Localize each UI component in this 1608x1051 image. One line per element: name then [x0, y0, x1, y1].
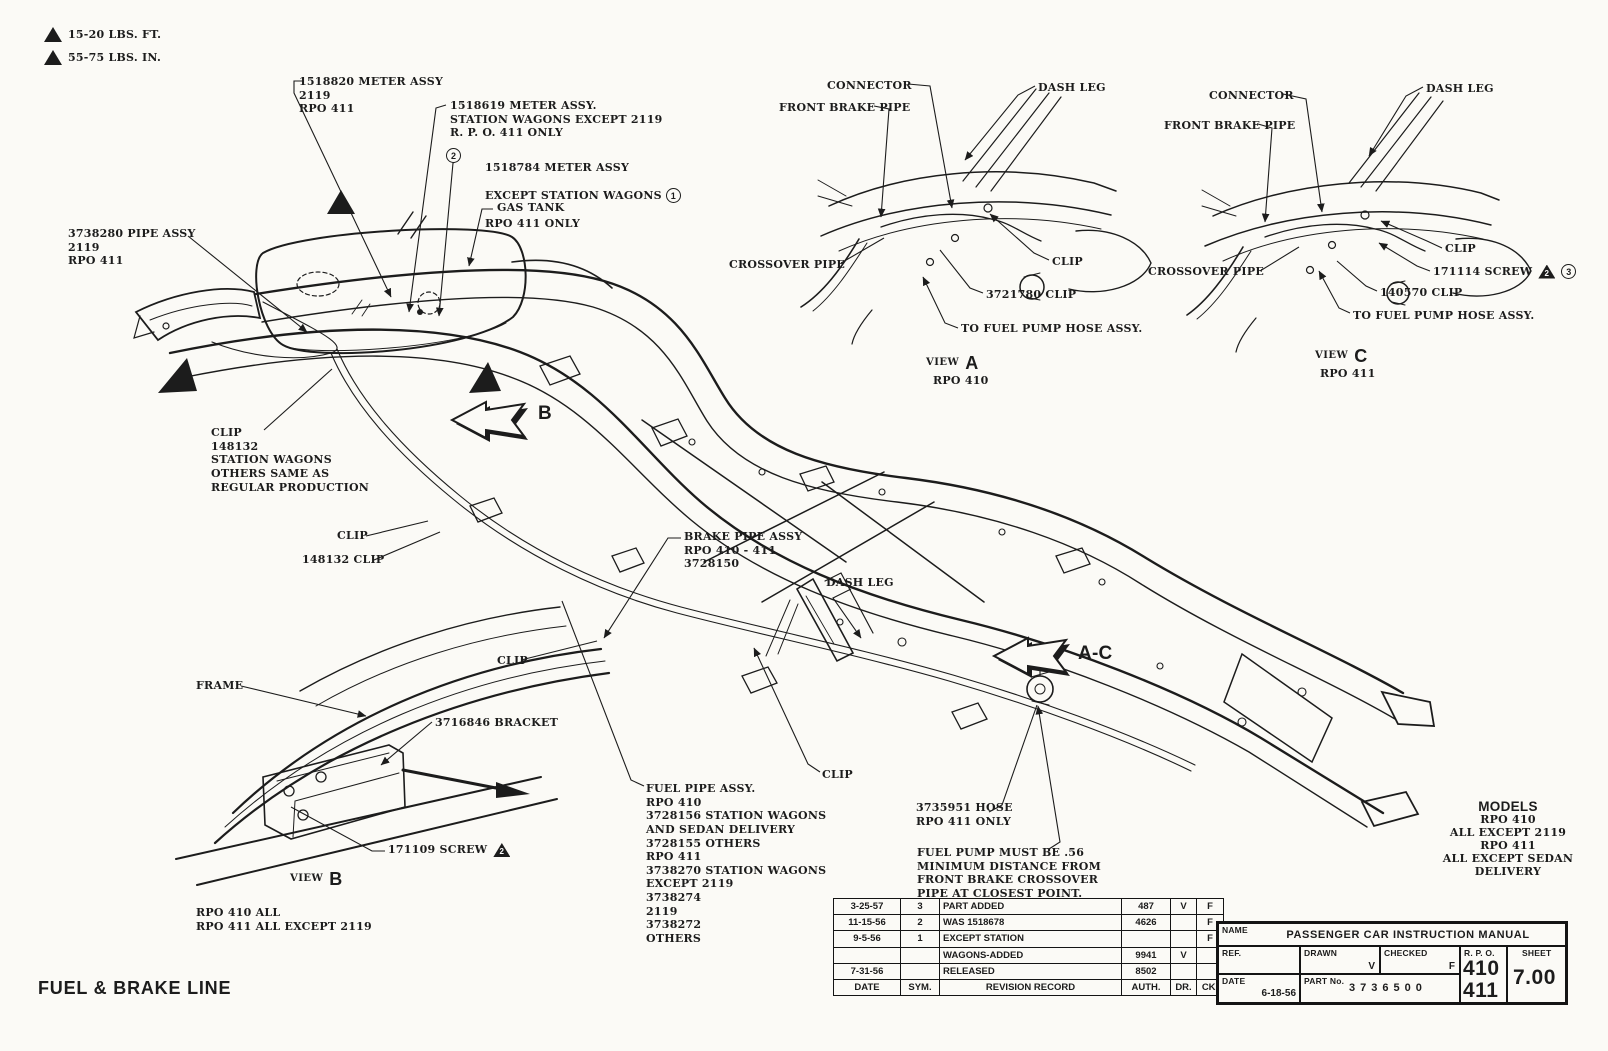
- callout-clip-lower: CLIP: [497, 654, 528, 668]
- legend-torque-in: 55-75 LBS. IN.: [44, 50, 161, 65]
- callout-meter-1518820: 1518820 METER ASSY 2119 RPO 411: [299, 75, 443, 116]
- view-a-clip-3721780: 3721780 CLIP: [986, 288, 1076, 302]
- rev-date: 11-15-56: [834, 915, 901, 931]
- view-a-crossover-pipe: CROSSOVER PIPE: [729, 258, 845, 272]
- view-c-clip: CLIP: [1445, 242, 1476, 256]
- view-a-connector: CONNECTOR: [827, 79, 912, 93]
- table-row: 3-25-57 3 PART ADDED 487 V F: [834, 899, 1224, 915]
- sheet-cell: SHEET 7.00: [1507, 946, 1566, 1003]
- chassis-art: [134, 212, 1434, 827]
- arrow-b-label: B: [538, 402, 552, 426]
- torque-triangle-2-icon: 2: [493, 843, 510, 857]
- rev-record: WAS 1518678: [940, 915, 1122, 931]
- view-b-screw-text: 171109 SCREW: [388, 843, 487, 857]
- rev-auth: 9941: [1122, 947, 1171, 963]
- rpo-value-2: 411: [1463, 980, 1498, 1001]
- drawn-value: V: [1368, 961, 1375, 972]
- legend-torque-ft-text: 15-20 LBS. FT.: [68, 28, 161, 42]
- circled-3-marker: 3: [1561, 264, 1576, 279]
- rpo-value-1: 410: [1463, 958, 1500, 979]
- checked-label: CHECKED: [1384, 948, 1427, 958]
- view-c-word: VIEW: [1315, 350, 1348, 362]
- view-c-to-fuel-pump: TO FUEL PUMP HOSE ASSY.: [1353, 309, 1534, 323]
- view-c-rpo: RPO 411: [1320, 367, 1376, 381]
- view-b-bracket: 3716846 BRACKET: [435, 716, 558, 730]
- callout-pipe-3738280: 3738280 PIPE ASSY 2119 RPO 411: [68, 227, 196, 268]
- sheet-value: 7.00: [1513, 967, 1556, 988]
- torque-triangle-2-icon: 2: [1538, 265, 1555, 279]
- torque-triangle-icon: [44, 27, 62, 42]
- rev-ck: F: [1197, 899, 1224, 915]
- arrow-ac-label: A-C: [1078, 642, 1113, 666]
- callout-meter-1518784: 1518784 METER ASSY EXCEPT STATION WAGONS…: [485, 147, 681, 244]
- drawing-title: FUEL & BRAKE LINE: [38, 978, 231, 999]
- view-b-letter: B: [329, 870, 342, 888]
- circled-2-marker: 2: [446, 148, 461, 163]
- table-header-row: DATE SYM. REVISION RECORD AUTH. DR. CK.: [834, 979, 1224, 995]
- table-row: WAGONS-ADDED 9941 V: [834, 947, 1224, 963]
- name-cell: NAME PASSENGER CAR INSTRUCTION MANUAL: [1218, 923, 1566, 946]
- callout-clip-station-wagons: CLIP 148132 STATION WAGONS OTHERS SAME A…: [211, 426, 369, 494]
- view-a-word: VIEW: [926, 357, 959, 369]
- rev-dr: [1171, 931, 1197, 947]
- rev-record: PART ADDED: [940, 899, 1122, 915]
- callout-gas-tank: GAS TANK: [497, 201, 564, 215]
- view-a-front-brake-pipe: FRONT BRAKE PIPE: [779, 101, 910, 115]
- view-c-clip-140570: 140570 CLIP: [1380, 286, 1462, 300]
- header-sym: SYM.: [901, 979, 940, 995]
- header-date: DATE: [834, 979, 901, 995]
- date-cell: DATE 6-18-56: [1218, 974, 1300, 1003]
- header-auth: AUTH.: [1122, 979, 1171, 995]
- rev-date: 7-31-56: [834, 963, 901, 979]
- part-value: 3736500: [1349, 982, 1427, 994]
- rev-sym: [901, 963, 940, 979]
- view-a-dash-leg: DASH LEG: [1038, 81, 1106, 95]
- view-c-title: VIEW C: [1315, 347, 1368, 365]
- circled-1-marker: 1: [666, 188, 681, 203]
- rev-dr: [1171, 915, 1197, 931]
- callout-clip-mid: CLIP: [337, 529, 368, 543]
- drawn-label: DRAWN: [1304, 948, 1337, 958]
- part-cell: PART No. 3736500: [1300, 974, 1460, 1003]
- table-row: 7-31-56 RELEASED 8502: [834, 963, 1224, 979]
- view-a-rpo: RPO 410: [933, 374, 989, 388]
- rev-dr: [1171, 963, 1197, 979]
- leader-lines: [188, 81, 1442, 851]
- view-c-connector: CONNECTOR: [1209, 89, 1294, 103]
- callout-dash-leg: DASH LEG: [826, 576, 894, 590]
- view-b-screw: 171109 SCREW 2: [388, 843, 510, 857]
- sheet-label: SHEET: [1522, 948, 1551, 958]
- view-b-applicability: RPO 410 ALL RPO 411 ALL EXCEPT 2119: [196, 906, 372, 933]
- callout-clip-148132: 148132 CLIP: [302, 553, 384, 567]
- callout-fuel-pump-note: FUEL PUMP MUST BE .56 MINIMUM DISTANCE F…: [917, 846, 1101, 901]
- view-c-screw-171114: 171114 SCREW 2 3: [1433, 264, 1576, 279]
- meter-1518784-line1: 1518784 METER ASSY: [485, 161, 681, 175]
- date-value: 6-18-56: [1262, 988, 1296, 999]
- header-record: REVISION RECORD: [940, 979, 1122, 995]
- table-row: 9-5-56 1 EXCEPT STATION F: [834, 931, 1224, 947]
- rev-record: EXCEPT STATION: [940, 931, 1122, 947]
- view-b-title: VIEW B: [290, 870, 343, 888]
- rev-dr: V: [1171, 899, 1197, 915]
- view-c-front-brake-pipe: FRONT BRAKE PIPE: [1164, 119, 1295, 133]
- rev-record: RELEASED: [940, 963, 1122, 979]
- view-a-art: [801, 89, 1151, 344]
- checked-value: F: [1449, 961, 1455, 972]
- view-c-letter: C: [1354, 347, 1367, 365]
- rev-auth: 8502: [1122, 963, 1171, 979]
- ref-cell: REF.: [1218, 946, 1300, 974]
- drawn-cell: DRAWN V: [1300, 946, 1380, 974]
- fuel-brake-line-drawing: 15-20 LBS. FT. 55-75 LBS. IN. 1518820 ME…: [0, 0, 1608, 1051]
- view-c-dash-leg: DASH LEG: [1426, 82, 1494, 96]
- rpo-cell: R. P. O. 410 411: [1460, 946, 1507, 1003]
- models-title: MODELS: [1412, 799, 1604, 814]
- rev-auth: 487: [1122, 899, 1171, 915]
- checked-cell: CHECKED F: [1380, 946, 1460, 974]
- header-dr: DR.: [1171, 979, 1197, 995]
- meter-1518784-line3: RPO 411 ONLY: [485, 217, 681, 231]
- models-line: RPO 411: [1412, 840, 1604, 853]
- callout-meter-1518619: 1518619 METER ASSY. STATION WAGONS EXCEP…: [450, 99, 663, 140]
- title-block: NAME PASSENGER CAR INSTRUCTION MANUAL RE…: [1216, 921, 1568, 1005]
- revision-table: 3-25-57 3 PART ADDED 487 V F 11-15-56 2 …: [833, 898, 1224, 996]
- models-line: ALL EXCEPT 2119: [1412, 827, 1604, 840]
- view-c-crossover-pipe: CROSSOVER PIPE: [1148, 265, 1264, 279]
- callout-brake-pipe-assy: BRAKE PIPE ASSY RPO 410 - 411 3728150: [684, 530, 802, 571]
- view-a-clip: CLIP: [1052, 255, 1083, 269]
- part-label: PART No.: [1304, 976, 1344, 986]
- rev-date: 3-25-57: [834, 899, 901, 915]
- callout-hose-3735951: 3735951 HOSE RPO 411 ONLY: [916, 801, 1013, 828]
- rev-sym: [901, 947, 940, 963]
- table-row: 11-15-56 2 WAS 1518678 4626 F: [834, 915, 1224, 931]
- name-label: NAME: [1222, 925, 1248, 935]
- view-c-screw-text: 171114 SCREW: [1433, 265, 1532, 279]
- ref-label: REF.: [1222, 948, 1241, 958]
- models-line: DELIVERY: [1412, 866, 1604, 879]
- rev-sym: 2: [901, 915, 940, 931]
- rev-sym: 1: [901, 931, 940, 947]
- view-a-title: VIEW A: [926, 354, 979, 372]
- view-a-to-fuel-pump: TO FUEL PUMP HOSE ASSY.: [961, 322, 1142, 336]
- rev-dr: V: [1171, 947, 1197, 963]
- rev-date: [834, 947, 901, 963]
- rev-auth: [1122, 931, 1171, 947]
- callout-clip-bottom: CLIP: [822, 768, 853, 782]
- rev-record: WAGONS-ADDED: [940, 947, 1122, 963]
- callout-fuel-pipe-assy: FUEL PIPE ASSY. RPO 410 3728156 STATION …: [646, 782, 826, 946]
- legend-torque-in-text: 55-75 LBS. IN.: [68, 51, 161, 65]
- view-b-frame: FRAME: [196, 679, 243, 693]
- date-label: DATE: [1222, 976, 1245, 986]
- rev-sym: 3: [901, 899, 940, 915]
- rev-auth: 4626: [1122, 915, 1171, 931]
- view-a-letter: A: [965, 354, 978, 372]
- rev-date: 9-5-56: [834, 931, 901, 947]
- models-line: ALL EXCEPT SEDAN: [1412, 853, 1604, 866]
- legend-torque-ft: 15-20 LBS. FT.: [44, 27, 161, 42]
- torque-triangles: [158, 190, 501, 393]
- name-value: PASSENGER CAR INSTRUCTION MANUAL: [1255, 929, 1561, 941]
- view-b-word: VIEW: [290, 873, 323, 885]
- torque-triangle-icon: [44, 50, 62, 65]
- models-block: MODELS RPO 410 ALL EXCEPT 2119 RPO 411 A…: [1412, 799, 1604, 879]
